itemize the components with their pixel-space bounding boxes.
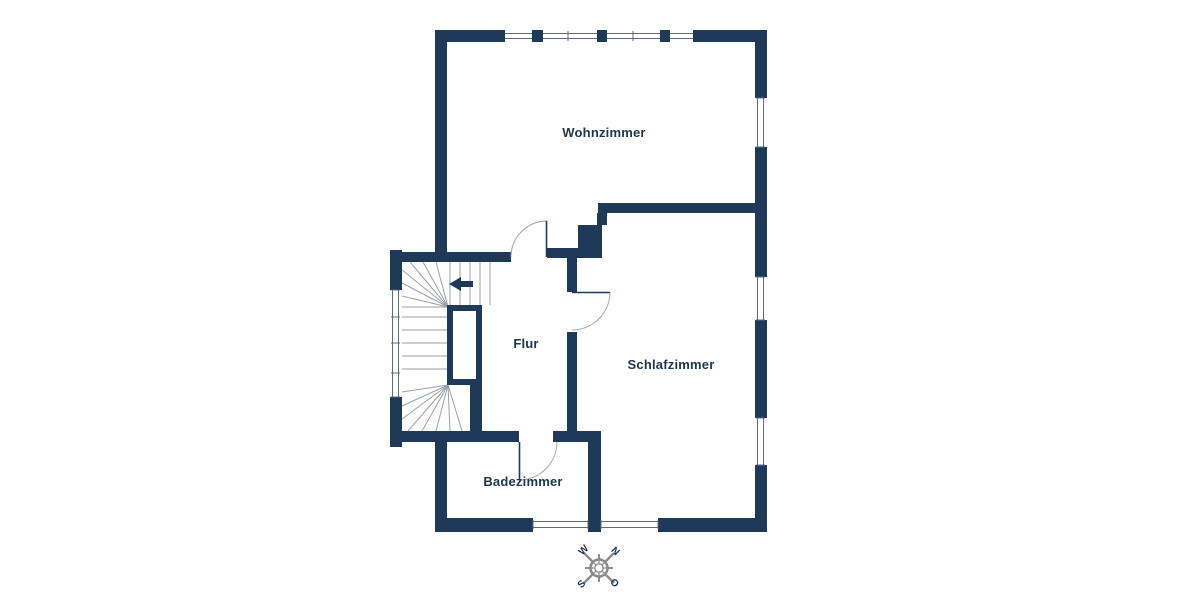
window-mullion [660,30,670,42]
window-bottom-badezimmer [533,520,588,529]
flur-top-wall-right [547,248,578,258]
stair-direction-arrow-icon [449,277,473,291]
walls [390,30,767,532]
window-right-schlafzimmer-2 [756,418,765,465]
bottom-wall-right [658,518,767,532]
right-wall-seg1 [755,30,767,98]
windows [391,30,765,529]
window-bottom-schlafzimmer [601,520,658,529]
room-label-schlafzimmer: Schlafzimmer [607,357,735,372]
window-right-wohnzimmer [756,98,765,147]
stair-bottom-wall [390,431,519,442]
right-wall-seg3 [755,320,767,418]
door-wohnzimmer [511,221,547,257]
window-mullion [532,30,543,42]
window-mullion [597,30,607,42]
badezimmer-left-wall [435,431,447,518]
floorplan-canvas: Wohnzimmer Schlafzimmer Flur Badezimmer … [0,0,1200,600]
room-label-wohnzimmer: Wohnzimmer [540,125,668,140]
room-label-flur: Flur [496,336,556,351]
bottom-wall-left [435,518,533,532]
chimney-connector [597,213,607,225]
window-stair-bay [391,290,400,397]
window-right-schlafzimmer-1 [756,277,765,320]
flur-schlafzimmer-wall-upper [567,258,577,292]
flur-schlafzimmer-wall-lower [567,332,577,442]
floorplan-drawing [0,0,1200,600]
room-label-badezimmer: Badezimmer [459,474,587,489]
window-top-band [505,30,693,42]
stair-void [450,308,479,382]
wohnzimmer-schlafzimmer-wall [598,203,767,213]
stair-right-wall [470,385,482,431]
chimney-bump [578,225,602,258]
flur-top-wall [390,252,511,262]
door-schlafzimmer [572,292,610,330]
left-wall-upper [435,30,447,262]
badezimmer-schlafzimmer-wall [588,431,601,532]
